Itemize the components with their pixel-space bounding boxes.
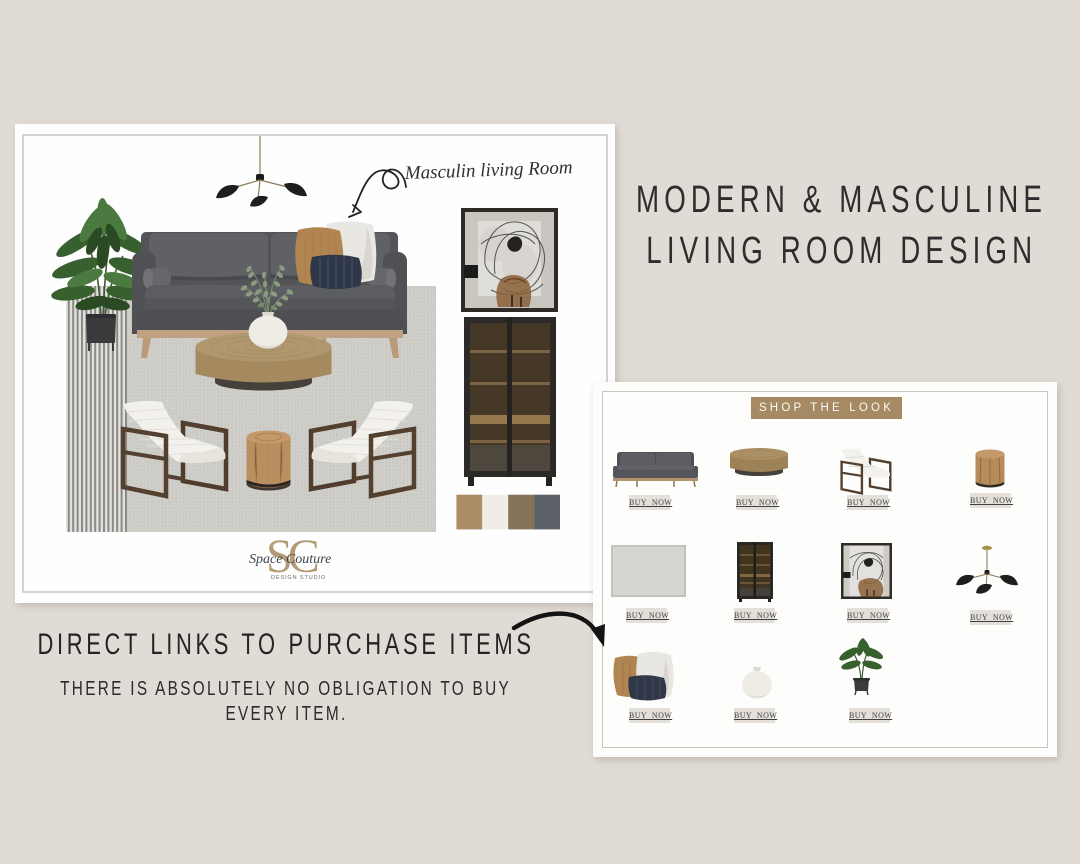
svg-text:DESIGN STUDIO: DESIGN STUDIO <box>271 575 326 581</box>
svg-text:Space Couture: Space Couture <box>249 552 331 567</box>
